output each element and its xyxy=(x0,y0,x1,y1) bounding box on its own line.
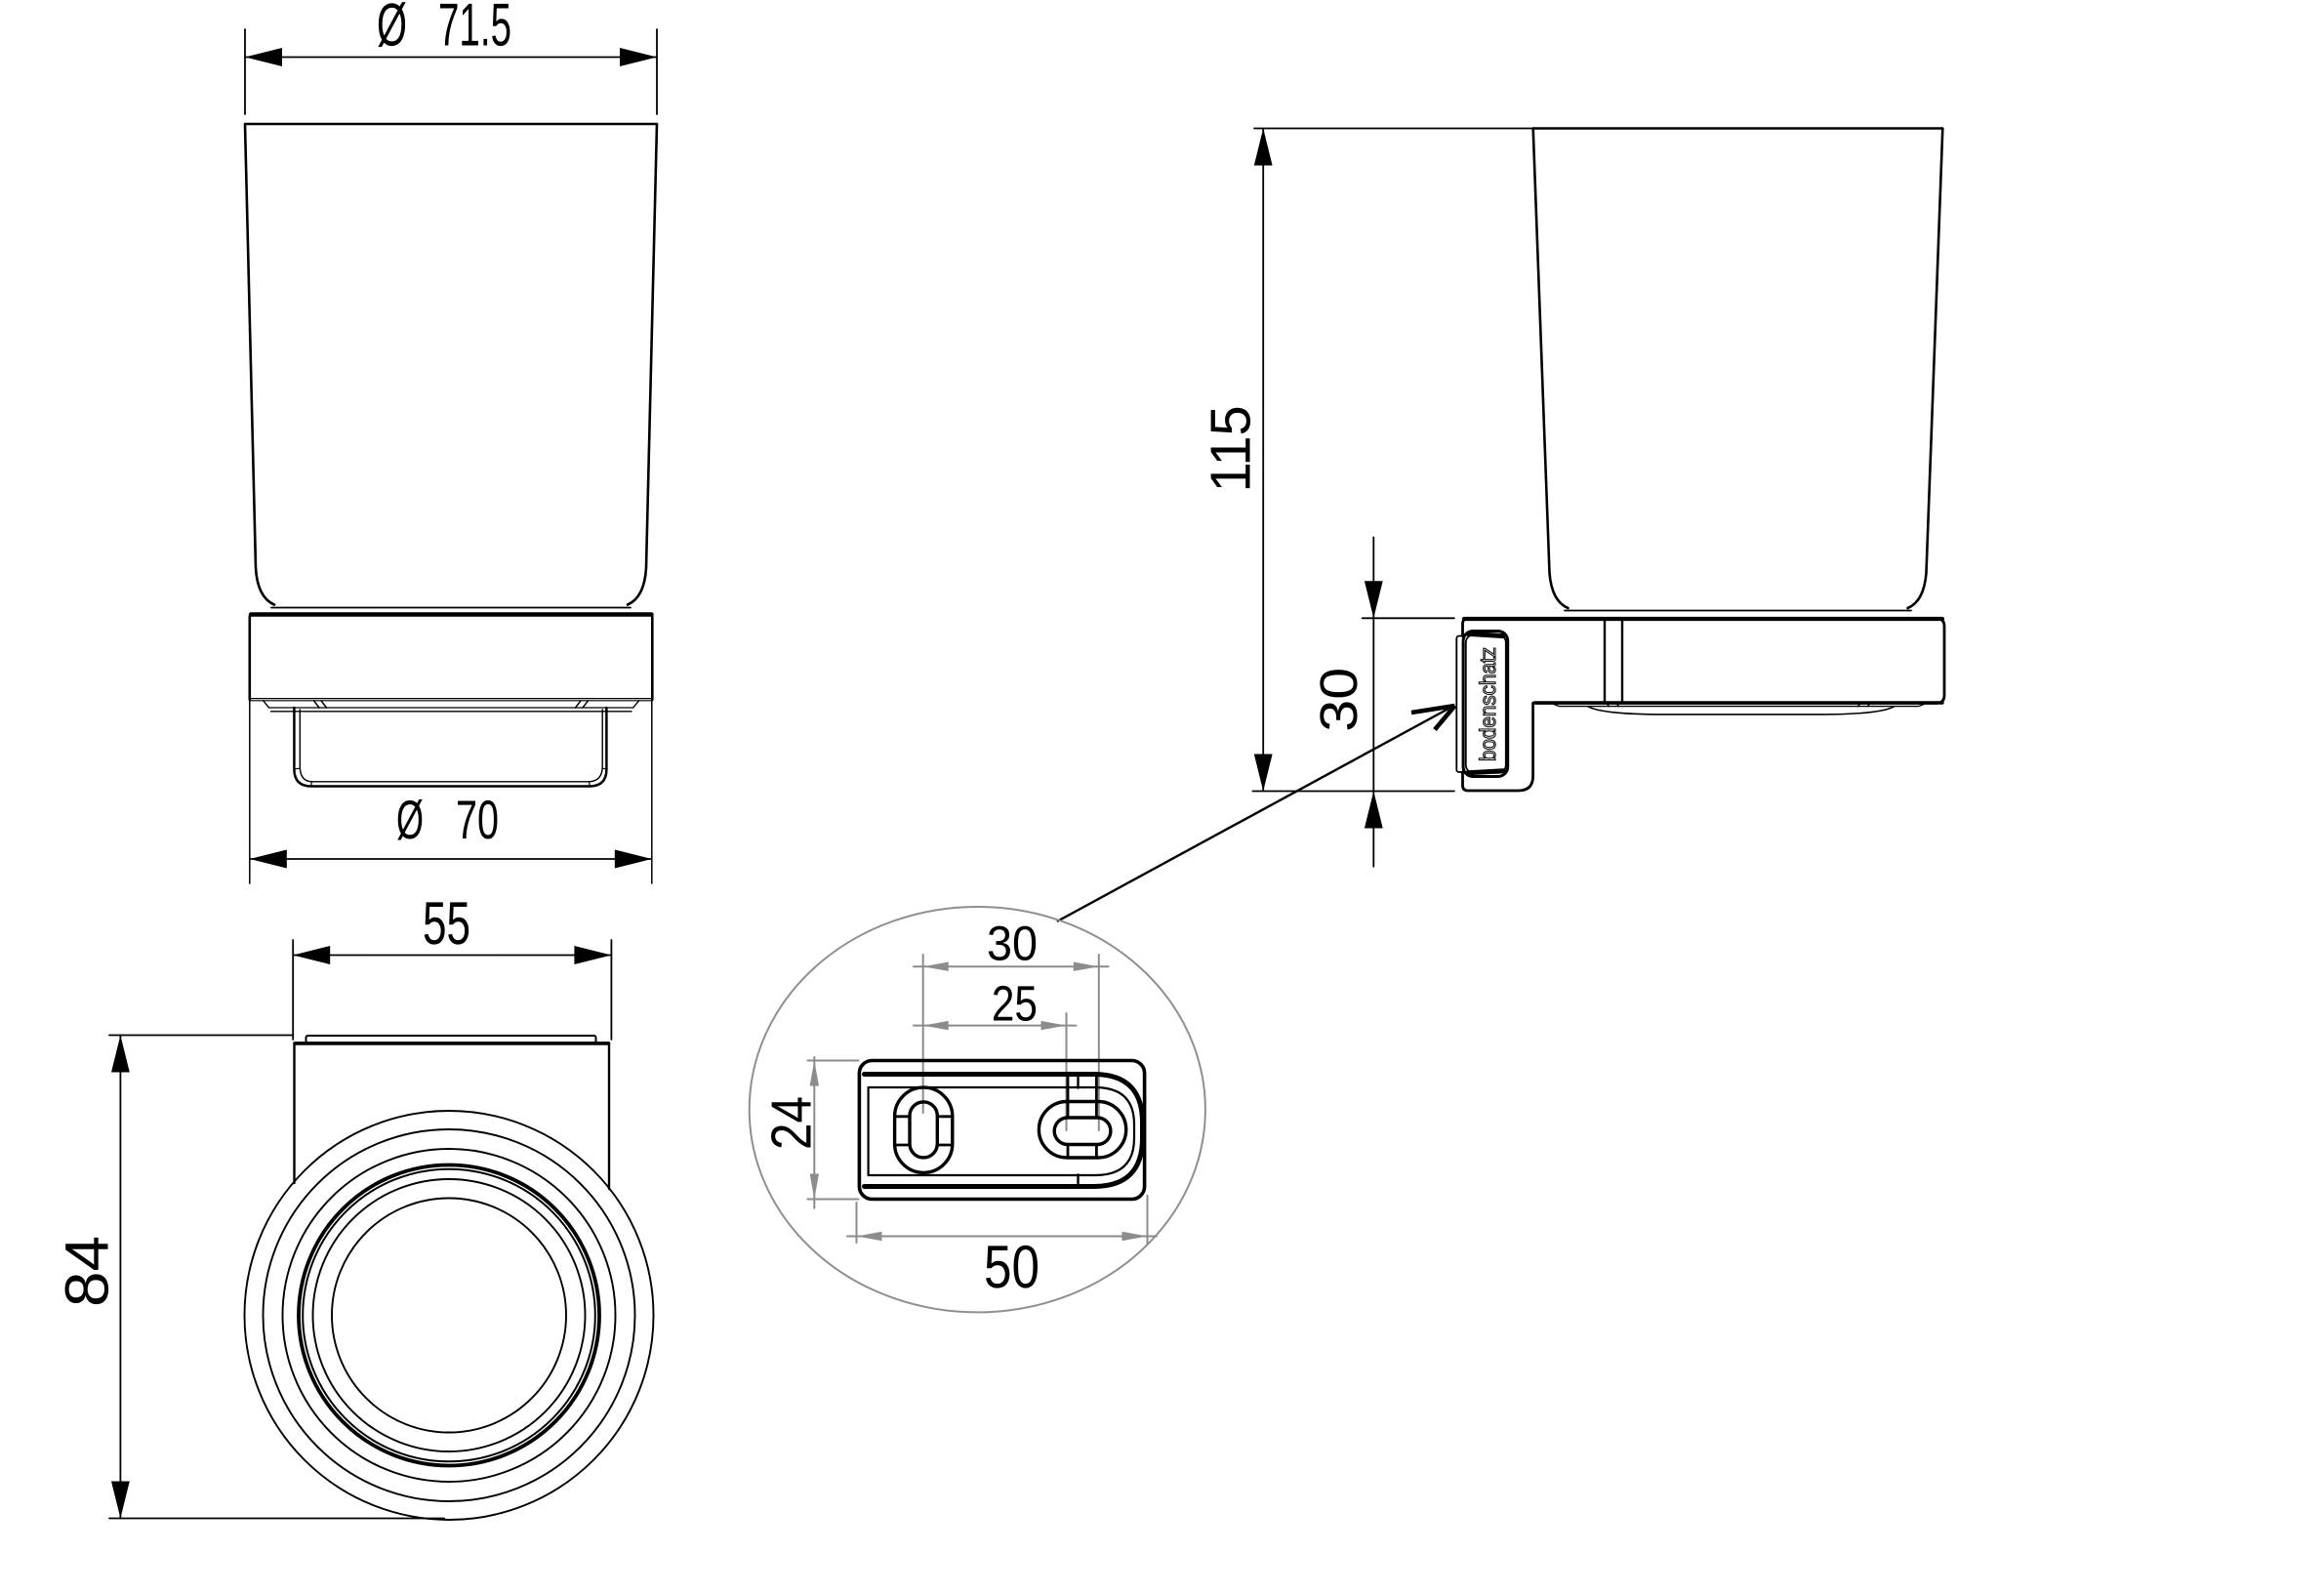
svg-text:55: 55 xyxy=(423,890,470,958)
svg-text:30: 30 xyxy=(1310,668,1368,732)
svg-text:50: 50 xyxy=(984,1234,1040,1301)
svg-text:70: 70 xyxy=(456,789,499,850)
svg-text:25: 25 xyxy=(992,976,1038,1032)
svg-text:Ø: Ø xyxy=(396,789,424,850)
svg-text:71.5: 71.5 xyxy=(438,0,511,60)
svg-text:24: 24 xyxy=(759,1096,823,1150)
svg-text:Ø: Ø xyxy=(377,0,407,60)
svg-text:84: 84 xyxy=(54,1236,122,1307)
svg-text:30: 30 xyxy=(987,917,1038,971)
svg-text:115: 115 xyxy=(1200,405,1263,492)
